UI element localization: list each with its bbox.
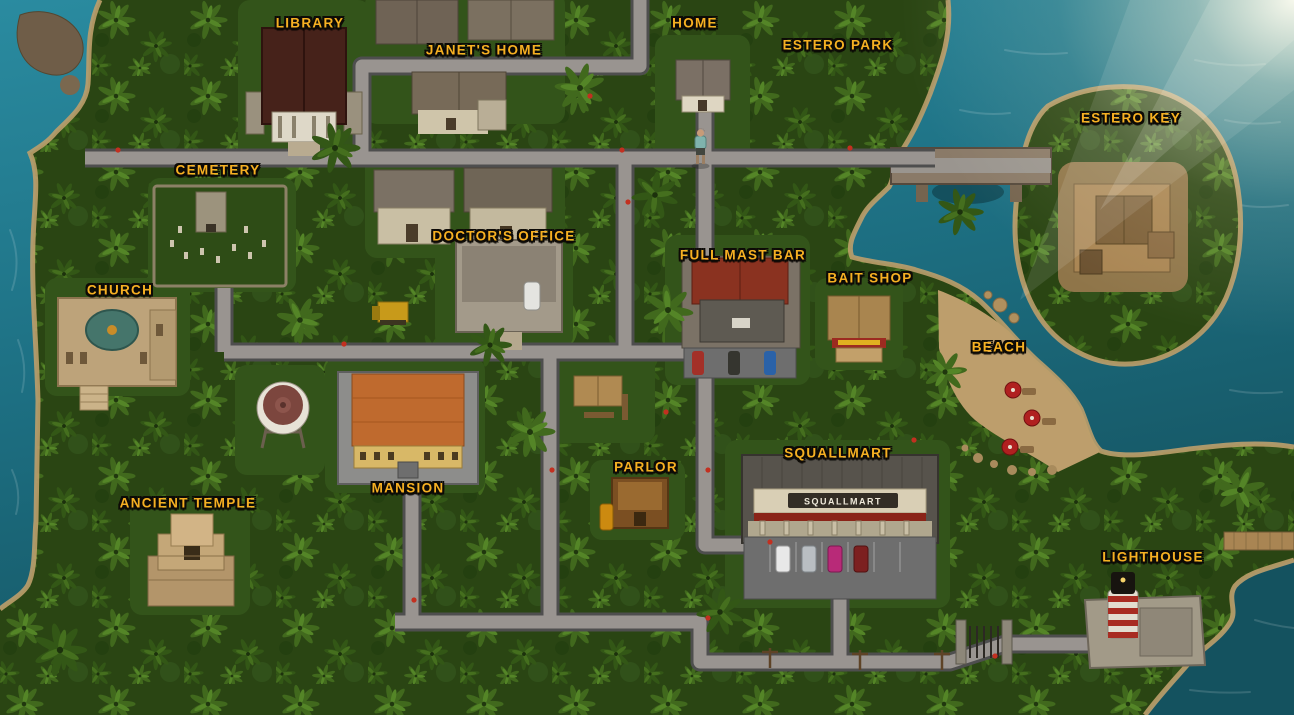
squallmart-sign-text: SQUALLMART xyxy=(804,497,882,507)
map-location-church[interactable]: Church xyxy=(87,283,153,298)
home-building xyxy=(676,60,730,112)
map-location-squallmart[interactable]: Squallmart xyxy=(784,446,892,461)
squallmart-building: SQUALLMART xyxy=(742,455,938,543)
map-location-lighthouse[interactable]: Lighthouse xyxy=(1102,550,1204,565)
sun-glare xyxy=(900,0,1294,340)
map-illustration: SQUALLMART xyxy=(0,0,1294,715)
bait-shop-building xyxy=(828,296,890,362)
map-location-mansion[interactable]: Mansion xyxy=(372,481,445,496)
map-location-estero-park[interactable]: Estero Park xyxy=(783,38,894,53)
full-mast-bar-building xyxy=(682,256,800,378)
squallmart-parking-lot xyxy=(744,537,936,599)
map-location-full-mast-bar[interactable]: Full Mast Bar xyxy=(680,248,806,263)
map-location-doctors-office[interactable]: Doctor's Office xyxy=(432,229,575,244)
map-location-library[interactable]: Library xyxy=(276,16,345,31)
janets-home-building xyxy=(412,72,506,134)
estate-gate xyxy=(956,620,1012,664)
map-location-beach[interactable]: Beach xyxy=(972,340,1027,355)
map-location-janets-home[interactable]: Janet's Home xyxy=(426,43,542,58)
map-location-home[interactable]: Home xyxy=(672,16,718,31)
map-location-parlor[interactable]: Parlor xyxy=(614,460,678,475)
map-location-cemetery[interactable]: Cemetery xyxy=(176,163,261,178)
map-location-bait-shop[interactable]: Bait Shop xyxy=(827,271,912,286)
mansion-building xyxy=(338,372,478,490)
map-location-ancient-temple[interactable]: Ancient Temple xyxy=(120,496,257,511)
pier xyxy=(1224,532,1294,550)
game-map-screen: SQUALLMART xyxy=(0,0,1294,715)
cemetery-grounds xyxy=(154,186,286,286)
map-location-estero-key[interactable]: Estero Key xyxy=(1081,111,1181,126)
